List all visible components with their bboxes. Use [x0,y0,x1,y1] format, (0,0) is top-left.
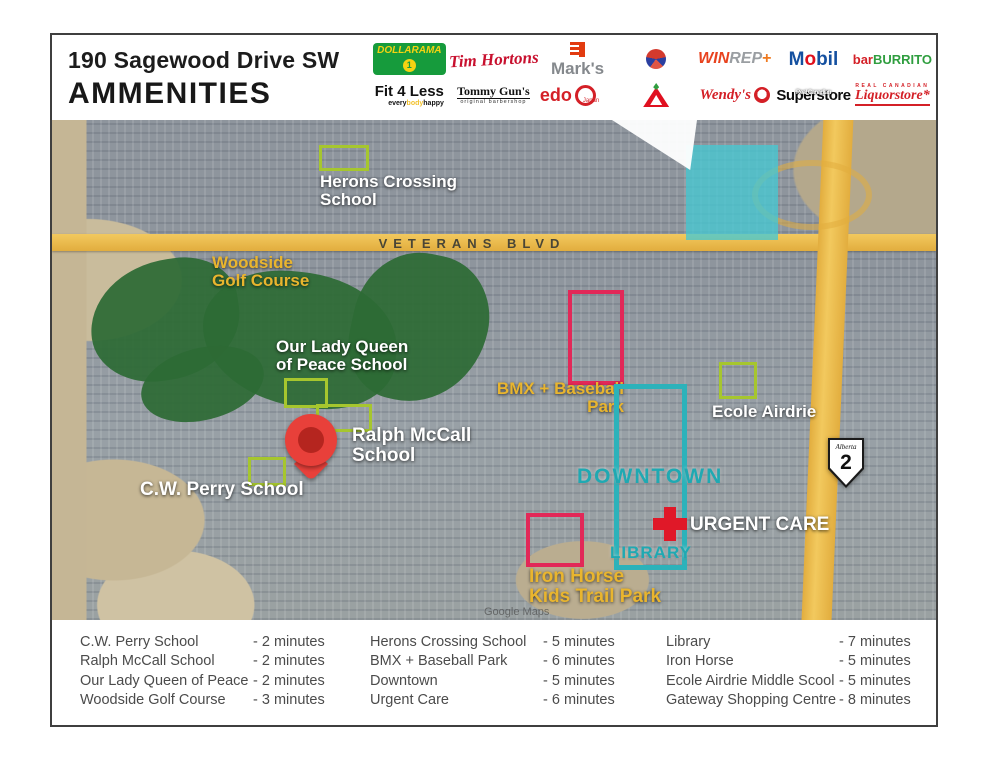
brand-logos-panel: DOLLARAMA 1 Tim Hortons Mark's WINREP+ M… [370,41,932,115]
page-title: AMMENITIES [68,77,271,111]
legend-row: Woodside Golf Course- 3 minutes [80,691,342,711]
library-label: LIBRARY [610,544,692,562]
red-blue-globe-icon [646,49,666,69]
tommy-guns-tagline: original barbershop [460,100,526,106]
fit4less-wordmark: Fit 4 Less [375,84,444,99]
canadian-tire-leaf-icon [653,83,659,90]
superstore-logo: Superstore Real Canadian [776,88,850,103]
herons-crossing-school-outline [319,145,369,171]
bmx-baseball-park-label: BMX + Baseball Park [472,380,624,416]
veterans-blvd-label: VETERANS BLVD [307,236,637,251]
legend-column-2: Herons Crossing School- 5 minutes BMX + … [370,632,632,710]
our-lady-queen-of-peace-label: Our Lady Queen of Peace School [276,338,408,374]
legend-row: Library- 7 minutes [666,632,932,652]
canadian-tire-logo [643,83,669,107]
gateway-shopping-centre-highlight [686,145,778,240]
dollarama-wordmark: DOLLARAMA [377,46,441,56]
urgent-care-label: URGENT CARE [690,515,829,535]
legend-row: Downtown- 5 minutes [370,671,632,691]
amenities-flyer: 190 Sagewood Drive SW AMMENITIES DOLLARA… [0,0,993,768]
aerial-map: VETERANS BLVD Herons Crossing School Woo… [52,120,936,620]
winrep-wordmark: WINREP+ [698,51,771,67]
barburrito-wordmark: barBURRITO [853,53,932,66]
legend-row: Our Lady Queen of Peace- 2 minutes [80,671,342,691]
cw-perry-school-label: C.W. Perry School [140,480,304,500]
map-watermark: Google Maps [484,606,549,618]
winrep-logo: WINREP+ [698,51,771,67]
ecole-airdrie-label: Ecole Airdrie [712,403,816,421]
marks-logo: Mark's [551,42,604,77]
tommy-guns-wordmark: Tommy Gun's [457,85,530,99]
downtown-label: DOWNTOWN [577,466,723,488]
wendys-emblem-icon [754,87,770,103]
flyer-frame: 190 Sagewood Drive SW AMMENITIES DOLLARA… [50,33,938,727]
iron-horse-park-label: Iron Horse Kids Trail Park [529,567,661,607]
mobil-logo: Mobil [789,50,839,69]
shield-number: 2 [828,451,864,475]
liquorstore-logo: REAL CANADIAN Liquorstore* [855,84,930,106]
legend-row: Urgent Care- 6 minutes [370,691,632,711]
legend-column-3: Library- 7 minutes Iron Horse- 5 minutes… [666,632,932,710]
shield-province: Alberta [828,443,864,451]
marks-wordmark: Mark's [551,60,604,77]
legend-row: Gateway Shopping Centre- 8 minutes [666,691,932,711]
superstore-overlay: Real Canadian [796,90,831,96]
header: 190 Sagewood Drive SW AMMENITIES DOLLARA… [52,35,936,120]
tim-hortons-logo: Tim Hortons [448,48,538,70]
mobil-wordmark: Mobil [789,50,839,69]
legend-row: Ecole Airdrie Middle Scool- 5 minutes [666,671,932,691]
edo-wordmark: edo [540,86,572,104]
legend-row: C.W. Perry School- 2 minutes [80,632,342,652]
ecole-airdrie-outline [719,362,757,399]
edo-japan-logo: edo Japan [540,85,615,106]
dollarama-logo: DOLLARAMA 1 [373,43,445,75]
callout-arrow [612,120,697,170]
pin-dot [298,427,324,453]
ralph-mccall-school-label: Ralph McCall School [352,426,471,466]
edo-japan-sub: Japan [583,98,599,104]
barburrito-logo: barBURRITO [853,53,932,66]
travel-times-legend: C.W. Perry School- 2 minutes Ralph McCal… [52,620,936,725]
legend-row: Iron Horse- 5 minutes [666,652,932,672]
wendys-wordmark: Wendy's [700,88,751,103]
marks-square-icon [570,42,585,57]
fit4less-logo: Fit 4 Less everybodyhappy [375,84,444,107]
legend-row: Ralph McCall School- 2 minutes [80,652,342,672]
iron-horse-park-outline [526,513,584,567]
fit4less-tagline: everybodyhappy [388,100,444,107]
woodside-golf-course-label: Woodside Golf Course [212,254,309,290]
liquorstore-wordmark: Liquorstore* [855,89,930,106]
property-address: 190 Sagewood Drive SW [68,47,339,74]
herons-crossing-school-label: Herons Crossing School [320,173,457,209]
legend-row: BMX + Baseball Park- 6 minutes [370,652,632,672]
bmx-baseball-park-outline [568,290,624,385]
urgent-care-cross-icon [653,507,687,541]
wendys-logo: Wendy's [700,87,770,103]
legend-column-1: C.W. Perry School- 2 minutes Ralph McCal… [80,632,342,710]
legend-row: Herons Crossing School- 5 minutes [370,632,632,652]
globe-logo [646,49,666,69]
tommy-guns-logo: Tommy Gun's original barbershop [457,85,530,106]
highway-2-shield-icon: Alberta 2 [828,438,864,488]
dollarama-coin-icon: 1 [403,59,416,72]
